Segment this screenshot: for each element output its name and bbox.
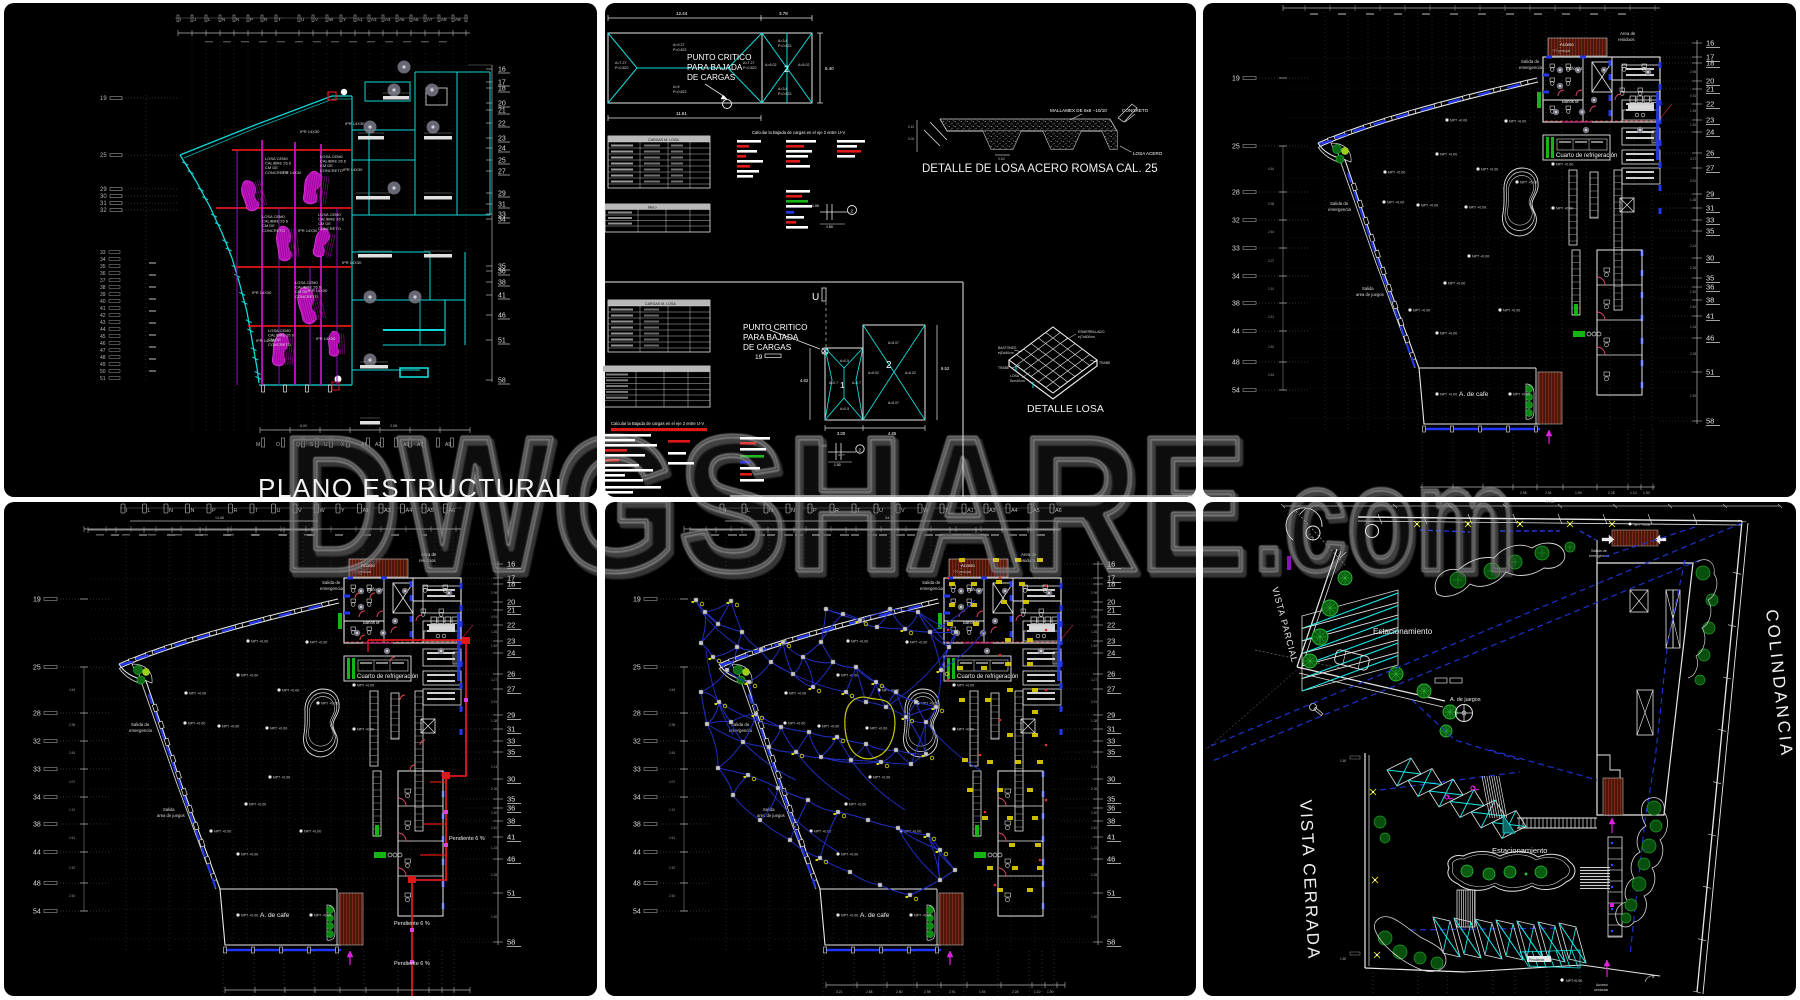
svg-text:31: 31: [498, 202, 506, 209]
svg-text:TRABE: TRABE: [998, 366, 1010, 370]
svg-text:58: 58: [498, 378, 506, 385]
svg-text:CARGAS M. LOSA: CARGAS M. LOSA: [645, 302, 676, 306]
svg-text:Pendiente 6 %: Pendiente 6 %: [394, 961, 430, 967]
svg-text:IPR 14X30: IPR 14X30: [345, 121, 365, 126]
svg-text:CONCRETO: CONCRETO: [320, 168, 343, 173]
svg-text:0.62: 0.62: [998, 157, 1005, 161]
svg-text:IPR 14X30: IPR 14X30: [298, 228, 318, 233]
svg-text:Pendiente: Pendiente: [1529, 958, 1544, 962]
svg-text:21: 21: [498, 108, 506, 115]
svg-text:36: 36: [498, 269, 506, 276]
svg-text:A=6.02: A=6.02: [868, 371, 879, 375]
svg-text:e)Dd40cm: e)Dd40cm: [998, 351, 1014, 355]
svg-text:CONCRETO: CONCRETO: [295, 294, 318, 299]
svg-text:CONCRETO: CONCRETO: [262, 228, 285, 233]
svg-text:P=0.822: P=0.822: [778, 44, 792, 48]
svg-text:37: 37: [100, 278, 106, 284]
svg-text:A=9: A=9: [673, 85, 680, 89]
svg-text:P=0.822: P=0.822: [673, 90, 687, 94]
svg-text:2: 2: [784, 64, 789, 74]
svg-text:NPT+0.00: NPT+0.00: [1566, 979, 1582, 983]
svg-text:2.91: 2.91: [949, 990, 956, 994]
svg-text:46: 46: [100, 341, 106, 347]
svg-text:1: 1: [840, 380, 845, 390]
svg-text:6.52: 6.52: [941, 366, 950, 371]
svg-text:11.61: 11.61: [676, 111, 687, 116]
svg-text:A=9.27: A=9.27: [673, 43, 685, 47]
svg-text:DE CARGAS: DE CARGAS: [687, 73, 736, 82]
svg-text:BASTONES: BASTONES: [998, 346, 1017, 350]
svg-text:45: 45: [100, 334, 106, 340]
svg-text:2.98: 2.98: [924, 990, 931, 994]
svg-text:32: 32: [100, 208, 107, 214]
svg-text:LOSA: LOSA: [1010, 374, 1020, 378]
svg-text:48: 48: [100, 355, 106, 361]
svg-text:CONCRETO: CONCRETO: [318, 226, 341, 231]
svg-text:PUNTO CRITICO: PUNTO CRITICO: [687, 53, 751, 62]
svg-text:19: 19: [755, 354, 763, 361]
svg-text:TRABE: TRABE: [1099, 361, 1111, 365]
svg-text:U: U: [277, 508, 281, 514]
svg-text:A=3.8: A=3.8: [778, 87, 788, 91]
svg-text:24: 24: [498, 146, 506, 153]
svg-text:77.93: 77.93: [1545, 500, 1554, 504]
svg-text:IPR 14X30: IPR 14X30: [308, 288, 328, 293]
svg-text:51: 51: [498, 338, 506, 345]
svg-text:1.50: 1.50: [826, 225, 833, 229]
svg-text:IPR 14X30: IPR 14X30: [282, 170, 302, 175]
svg-text:LOSA ACERO: LOSA ACERO: [1133, 151, 1163, 156]
svg-text:41: 41: [100, 306, 106, 312]
svg-text:1.50: 1.50: [1340, 957, 1346, 961]
svg-text:A=6.02: A=6.02: [905, 371, 916, 375]
svg-text:A=6.07: A=6.07: [888, 341, 899, 345]
svg-text:1.10: 1.10: [1034, 990, 1041, 994]
svg-text:A. de juegos: A. de juegos: [1450, 697, 1481, 703]
svg-text:23: 23: [498, 136, 506, 143]
svg-text:IPR 14X30: IPR 14X30: [343, 167, 363, 172]
svg-text:O: O: [276, 442, 280, 448]
svg-text:2.80: 2.80: [896, 990, 903, 994]
svg-text:1.90: 1.90: [1047, 990, 1054, 994]
svg-text:A=6.02: A=6.02: [798, 63, 810, 67]
svg-text:2: 2: [886, 360, 892, 371]
svg-text:33: 33: [100, 250, 106, 256]
svg-text:47: 47: [100, 348, 106, 354]
svg-text:12.44: 12.44: [676, 11, 688, 16]
svg-text:vehicular: vehicular: [1594, 988, 1609, 992]
svg-text:CARGAS M. LOSA: CARGAS M. LOSA: [648, 138, 679, 142]
svg-text:A=3.8: A=3.8: [778, 39, 788, 43]
svg-text:e)7x600cm: e)7x600cm: [1078, 335, 1095, 339]
svg-text:35: 35: [100, 264, 106, 270]
svg-text:IPR 14X30: IPR 14X30: [316, 336, 336, 341]
svg-text:U: U: [812, 292, 819, 303]
svg-text:Estacionamiento: Estacionamiento: [1373, 627, 1433, 636]
svg-text:ESMERRILLADO: ESMERRILLADO: [1078, 330, 1105, 334]
svg-text:M: M: [256, 442, 260, 448]
svg-text:43: 43: [100, 320, 106, 326]
svg-text:4.62: 4.62: [800, 378, 809, 383]
svg-text:0.10: 0.10: [908, 125, 914, 129]
svg-text:DWGSHARE: DWGSHARE: [281, 396, 1247, 611]
svg-text:3.21: 3.21: [836, 990, 843, 994]
svg-text:22: 22: [498, 121, 506, 128]
svg-text:A=0.7: A=0.7: [829, 381, 838, 385]
svg-text:38: 38: [100, 285, 106, 291]
svg-text:46: 46: [498, 313, 506, 320]
svg-text:Pendiente 6 %: Pendiente 6 %: [394, 921, 430, 927]
svg-text:3.78: 3.78: [779, 11, 788, 16]
svg-text:NPT +0.00: NPT +0.00: [1634, 523, 1650, 527]
svg-text:29: 29: [498, 191, 506, 198]
svg-text:5cm10cm: 5cm10cm: [1010, 379, 1025, 383]
svg-text:31: 31: [100, 201, 107, 207]
svg-text:L: L: [148, 508, 151, 514]
svg-text:DE CARGAS: DE CARGAS: [743, 343, 792, 352]
svg-text:IPR 14X30: IPR 14X30: [342, 260, 362, 265]
svg-text:N: N: [169, 508, 173, 514]
svg-text:PUNTO CRITICO: PUNTO CRITICO: [743, 323, 807, 332]
svg-text:34: 34: [100, 257, 106, 263]
svg-text:A=0.5: A=0.5: [840, 359, 849, 363]
svg-text:IPR 14X30: IPR 14X30: [256, 338, 276, 343]
svg-text:42: 42: [100, 313, 106, 319]
svg-text:P=0.822: P=0.822: [778, 92, 792, 96]
svg-text:25: 25: [100, 153, 107, 159]
svg-text:29: 29: [100, 187, 107, 193]
svg-text:P=0.822: P=0.822: [743, 66, 757, 70]
svg-text:44: 44: [100, 327, 106, 333]
svg-text:19: 19: [100, 96, 107, 102]
svg-text:1.94: 1.94: [979, 990, 986, 994]
svg-text:Muro: Muro: [648, 206, 657, 210]
svg-text:MALLAMEX DE 6x6 −10/10: MALLAMEX DE 6x6 −10/10: [1050, 108, 1107, 113]
svg-text:PARA BAJADA: PARA BAJADA: [687, 63, 743, 72]
svg-text:A=7.27: A=7.27: [615, 61, 627, 65]
svg-text:18: 18: [498, 86, 506, 93]
svg-text:39: 39: [100, 292, 106, 298]
svg-text:30: 30: [100, 194, 107, 200]
svg-text:2.88: 2.88: [866, 990, 873, 994]
svg-text:Pendiente 6 %: Pendiente 6 %: [449, 836, 485, 842]
svg-text:6.40: 6.40: [825, 66, 834, 71]
svg-text:P=0.822: P=0.822: [615, 66, 629, 70]
svg-text:41: 41: [498, 293, 506, 300]
svg-text:0.04: 0.04: [908, 137, 914, 141]
svg-text:38: 38: [498, 280, 506, 287]
svg-text:Acceso: Acceso: [1596, 983, 1608, 987]
svg-text:IPR 14X30: IPR 14X30: [252, 290, 272, 295]
svg-text:P: P: [212, 508, 216, 514]
svg-text:27: 27: [498, 169, 506, 176]
svg-text:2.28: 2.28: [1012, 990, 1019, 994]
svg-text:.com: .com: [1253, 434, 1515, 602]
svg-text:16: 16: [498, 67, 506, 74]
svg-text:P=0.822: P=0.822: [673, 48, 687, 52]
svg-text:R: R: [234, 508, 238, 514]
svg-text:20: 20: [498, 101, 506, 108]
svg-text:1.50: 1.50: [1340, 759, 1346, 763]
svg-text:40: 40: [100, 299, 106, 305]
svg-text:N: N: [191, 508, 195, 514]
svg-text:1.90: 1.90: [812, 204, 819, 208]
svg-text:Salida de: Salida de: [1591, 549, 1607, 553]
svg-text:DETALLE DE LOSA ACERO ROMS: DETALLE DE LOSA ACERO ROMSA CAL. 25: [922, 163, 1158, 175]
svg-text:36: 36: [100, 271, 106, 277]
svg-text:A=6.02: A=6.02: [765, 63, 777, 67]
svg-text:Calcular la Bajada de cargas e: Calcular la Bajada de cargas en el eje 2…: [752, 130, 845, 135]
svg-text:34: 34: [498, 217, 506, 224]
svg-text:14.86: 14.86: [215, 516, 224, 520]
svg-text:25: 25: [498, 158, 506, 165]
svg-text:A=0.7: A=0.7: [852, 381, 861, 385]
svg-text:49: 49: [100, 362, 106, 368]
svg-text:51: 51: [100, 376, 106, 382]
svg-text:Estacionamiento: Estacionamiento: [1492, 846, 1547, 855]
svg-text:IPR 14X30: IPR 14X30: [300, 129, 320, 134]
svg-text:50: 50: [100, 369, 106, 375]
